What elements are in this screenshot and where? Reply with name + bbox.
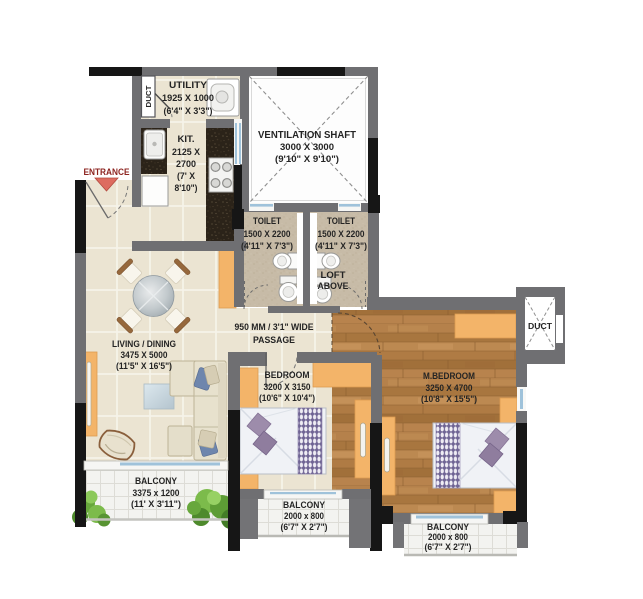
svg-text:DUCT: DUCT — [146, 85, 153, 108]
svg-text:3200 X 3150: 3200 X 3150 — [264, 382, 311, 392]
svg-text:2000 x 800: 2000 x 800 — [428, 532, 468, 542]
svg-text:DUCT: DUCT — [528, 322, 552, 331]
svg-text:1925 X 1000: 1925 X 1000 — [162, 93, 214, 103]
svg-text:8'10"): 8'10") — [175, 183, 198, 193]
svg-text:(10'6" X 10'4"): (10'6" X 10'4") — [259, 393, 315, 403]
svg-text:VENTILATION SHAFT: VENTILATION SHAFT — [258, 130, 356, 141]
svg-text:(11' X 3'11"): (11' X 3'11") — [131, 499, 181, 509]
svg-text:3000 X 3000: 3000 X 3000 — [280, 142, 334, 152]
svg-text:2125 X: 2125 X — [172, 147, 200, 157]
svg-text:(11'5" X 16'5"): (11'5" X 16'5") — [116, 361, 172, 371]
svg-text:LOFT: LOFT — [321, 270, 347, 280]
svg-text:950 MM / 3'1" WIDE: 950 MM / 3'1" WIDE — [235, 322, 314, 332]
svg-text:(10'8" X 15'5"): (10'8" X 15'5") — [421, 394, 477, 404]
svg-text:(9'10" X 9'10"): (9'10" X 9'10") — [275, 154, 339, 164]
svg-text:(4'11" X 7'3"): (4'11" X 7'3") — [315, 241, 367, 251]
svg-text:1500 X 2200: 1500 X 2200 — [244, 229, 291, 239]
svg-text:(6'7" X 2'7"): (6'7" X 2'7") — [425, 542, 472, 552]
svg-text:TOILET: TOILET — [253, 216, 281, 226]
svg-text:TOILET: TOILET — [327, 216, 355, 226]
svg-text:(6'7" X 2'7"): (6'7" X 2'7") — [281, 522, 328, 532]
svg-text:ABOVE: ABOVE — [318, 281, 349, 291]
svg-text:UTILITY: UTILITY — [169, 80, 207, 90]
svg-text:BALCONY: BALCONY — [283, 500, 325, 510]
svg-text:BALCONY: BALCONY — [427, 522, 469, 532]
svg-text:1500 X 2200: 1500 X 2200 — [318, 229, 365, 239]
svg-text:KIT.: KIT. — [178, 134, 195, 144]
svg-text:2700: 2700 — [176, 159, 196, 169]
svg-text:BALCONY: BALCONY — [135, 476, 177, 486]
svg-text:PASSAGE: PASSAGE — [253, 335, 295, 345]
svg-text:3475 X 5000: 3475 X 5000 — [121, 350, 168, 360]
svg-text:M.BEDROOM: M.BEDROOM — [423, 371, 475, 381]
svg-text:(6'4" X 3'3"): (6'4" X 3'3") — [164, 106, 213, 116]
svg-text:(4'11" X 7'3"): (4'11" X 7'3") — [241, 241, 293, 251]
svg-text:ENTRANCE: ENTRANCE — [84, 167, 130, 177]
svg-text:BEDROOM: BEDROOM — [265, 370, 310, 380]
svg-text:3250 X 4700: 3250 X 4700 — [426, 383, 473, 393]
svg-text:(7' X: (7' X — [177, 171, 195, 181]
svg-text:LIVING / DINING: LIVING / DINING — [112, 339, 176, 349]
svg-text:3375 x 1200: 3375 x 1200 — [133, 488, 180, 498]
svg-text:2000 x 800: 2000 x 800 — [284, 511, 324, 521]
